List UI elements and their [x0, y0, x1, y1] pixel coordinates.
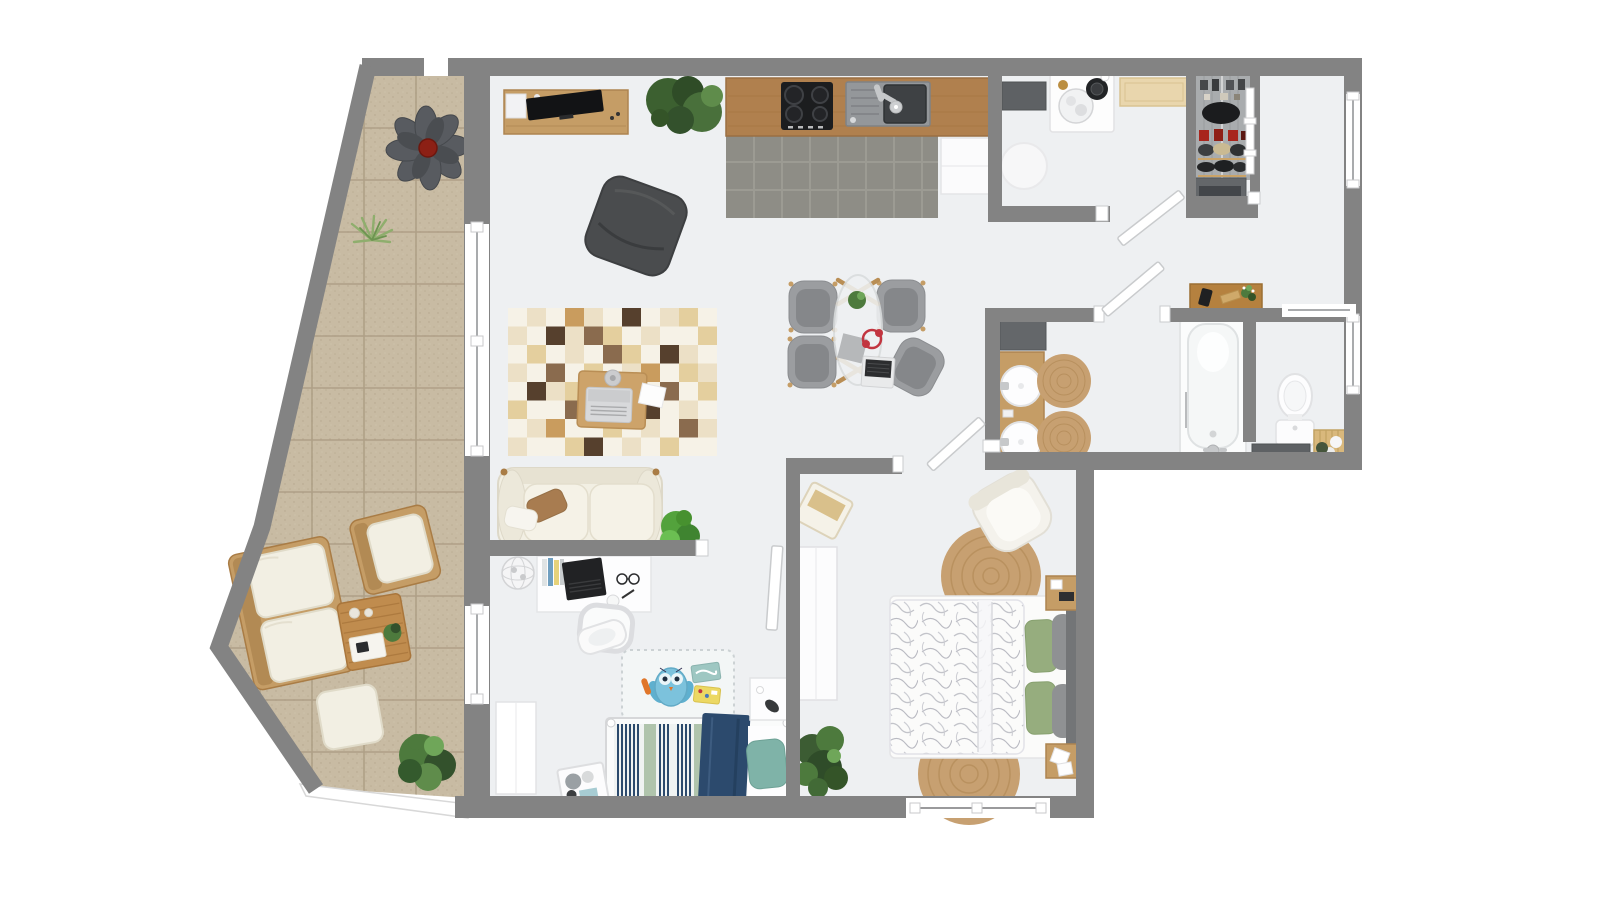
- rug-cell: [546, 382, 565, 401]
- rug-cell: [527, 419, 546, 438]
- black-laptop: [562, 557, 607, 600]
- rug-cell: [546, 419, 565, 438]
- rug-cell: [679, 364, 698, 383]
- rug-cell: [584, 327, 603, 346]
- rug-cell: [679, 401, 698, 420]
- wc-window: [1282, 304, 1356, 317]
- rug-cell: [698, 382, 717, 401]
- rug-cell: [698, 308, 717, 327]
- rug-cell: [546, 308, 565, 327]
- right-window-2: [1346, 314, 1360, 394]
- rug-cell: [622, 438, 641, 457]
- rug-cell: [584, 308, 603, 327]
- card-stickers: [693, 686, 721, 705]
- double-bed: [890, 596, 1078, 758]
- wire-basket: [502, 557, 534, 589]
- rug-cell: [508, 364, 527, 383]
- books: [542, 558, 564, 586]
- rug-cell: [603, 308, 622, 327]
- kids-bed: [606, 713, 792, 809]
- rug-cell: [679, 327, 698, 346]
- rug-cell: [641, 345, 660, 364]
- drain: [1210, 431, 1217, 438]
- kid-master-divider-wall: [786, 458, 800, 798]
- office-room: [1190, 284, 1262, 312]
- rug-cell: [508, 308, 527, 327]
- wardrobe-left-wall: [1186, 76, 1196, 214]
- soap: [1003, 410, 1013, 417]
- silver-laptop: [585, 387, 632, 423]
- left-window-1: [465, 222, 489, 456]
- kitchen-sink: [846, 82, 930, 126]
- rug-cell: [546, 438, 565, 457]
- rug-cell: [679, 382, 698, 401]
- doormat: [1120, 78, 1188, 106]
- kids-nightstand: [750, 678, 790, 720]
- rug-cell: [698, 364, 717, 383]
- rug-cell: [565, 327, 584, 346]
- tub-wc-divider-wall: [1243, 316, 1256, 442]
- rug-cell: [527, 327, 546, 346]
- rug-cell: [527, 364, 546, 383]
- rug-cell: [603, 438, 622, 457]
- left-window-2: [465, 604, 489, 704]
- half-wall: [490, 540, 708, 556]
- dining-chair: [788, 336, 837, 388]
- rug-cell: [584, 438, 603, 457]
- rug-cell: [679, 308, 698, 327]
- rug-cell: [527, 401, 546, 420]
- rug-cell: [660, 327, 679, 346]
- papers: [638, 383, 666, 408]
- rug-cell: [698, 327, 717, 346]
- rug-cell: [565, 438, 584, 457]
- sideboard: [504, 89, 628, 134]
- rug-cell: [546, 345, 565, 364]
- rug-cell: [527, 382, 546, 401]
- rug-cell: [660, 419, 679, 438]
- rug-cell: [641, 327, 660, 346]
- rug-cell: [660, 438, 679, 457]
- nightstand: [1046, 576, 1080, 610]
- rug-cell: [698, 419, 717, 438]
- dining-chair: [789, 281, 838, 333]
- washing-machine: [1050, 73, 1114, 132]
- laundry-bottom-wall: [988, 206, 1110, 222]
- rug-cell: [565, 308, 584, 327]
- rug-cell: [508, 438, 527, 457]
- leaf-duvet: [890, 600, 1024, 754]
- rug-cell: [698, 345, 717, 364]
- rug-cell: [622, 327, 641, 346]
- bathroom-left-wall: [985, 310, 1000, 452]
- kitchen-floor: [726, 134, 938, 218]
- rug-cell: [508, 345, 527, 364]
- rug-cell: [508, 382, 527, 401]
- closet-sliding-door: [1244, 88, 1256, 174]
- rug-cell: [603, 345, 622, 364]
- teal-pillow: [746, 738, 789, 790]
- rug-cell: [679, 345, 698, 364]
- right-window-1: [1346, 92, 1360, 188]
- duvet-fold: [978, 600, 992, 754]
- rug-cell: [546, 364, 565, 383]
- rug-cell: [508, 327, 527, 346]
- rug-cell: [527, 438, 546, 457]
- rug-cell: [641, 308, 660, 327]
- cooktop: [781, 82, 833, 130]
- printer: [506, 94, 526, 118]
- floor-plan-rendering: [0, 0, 1600, 900]
- nightstand: [1046, 744, 1080, 778]
- card-teal: [691, 662, 721, 683]
- bathtub: [1180, 316, 1246, 462]
- rug-cell: [679, 438, 698, 457]
- outdoor-coffee-table: [337, 593, 412, 671]
- laundry-left-wall: [988, 76, 1002, 222]
- rug-cell: [660, 364, 679, 383]
- rug-cell: [527, 345, 546, 364]
- rug-cell: [546, 327, 565, 346]
- master-right-wall: [1076, 452, 1094, 818]
- jute-rug-small: [1037, 354, 1091, 408]
- rug-cell: [622, 308, 641, 327]
- cream-sofa: [498, 468, 662, 548]
- rug-cell: [603, 327, 622, 346]
- navy-blanket: [698, 713, 751, 809]
- wardrobe-bottom-wall: [1186, 196, 1258, 218]
- rug-cell: [584, 345, 603, 364]
- rug-cell: [565, 345, 584, 364]
- master-top-wall: [786, 458, 902, 474]
- flower-lounge-chair: [386, 106, 470, 190]
- round-rug: [1001, 143, 1047, 189]
- toilet: [1276, 374, 1314, 446]
- wall-desk: [1190, 284, 1262, 312]
- section-bottom-wall: [985, 452, 1362, 470]
- rug-cell: [660, 308, 679, 327]
- balcony-top-gap: [424, 58, 448, 76]
- table-laptop: [861, 356, 895, 388]
- floor-plan-page: [0, 0, 1600, 900]
- ottoman: [315, 683, 384, 751]
- counter-mat: [1002, 82, 1046, 110]
- rug-cell: [698, 401, 717, 420]
- wardrobe-closet: [1196, 76, 1250, 180]
- rug-cell: [508, 419, 527, 438]
- dining-chair: [877, 280, 926, 332]
- rug-cell: [622, 345, 641, 364]
- rug-cell: [660, 345, 679, 364]
- rug-cell: [508, 401, 527, 420]
- master-window: [906, 798, 1050, 818]
- play-rug: [622, 650, 734, 720]
- rug-cell: [641, 438, 660, 457]
- rug-cell: [546, 401, 565, 420]
- bathroom-top-wall: [985, 308, 1103, 322]
- rug-cell: [698, 438, 717, 457]
- rug-cell: [527, 308, 546, 327]
- rug-cell: [679, 419, 698, 438]
- top-wall: [362, 58, 1362, 76]
